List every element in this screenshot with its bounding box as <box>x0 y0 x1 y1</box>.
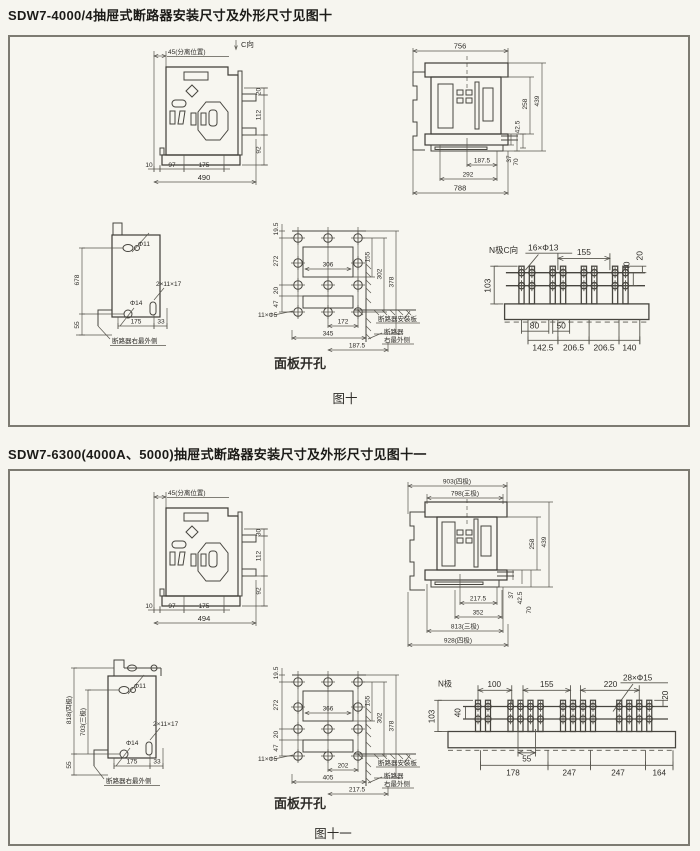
panel-cutout-caption: 面板开孔 <box>274 356 326 371</box>
dim-label: 345 <box>323 331 334 338</box>
dim-label: 175 <box>199 603 210 610</box>
dim-label: 202 <box>338 763 349 770</box>
figure11-caption: 图十一 <box>314 827 352 841</box>
nbar-label: N极 <box>438 679 452 689</box>
dim-label: 678 <box>74 274 81 285</box>
hole-phi11 <box>123 245 133 252</box>
figure10-drawing: C向 45(分离位置) 20 112 92 10 97 175 490 756 … <box>10 37 688 425</box>
dim-label: 70 <box>526 606 533 614</box>
dim-label: 92 <box>256 587 263 595</box>
dim-label: 112 <box>256 109 263 120</box>
dim-overall-width: 756 <box>454 42 467 51</box>
dim-separated-position: 45(分离位置) <box>168 488 206 497</box>
dim-label: 40 <box>454 708 463 718</box>
slot-11x17 <box>150 302 156 315</box>
figure11-drawing: 45(分离位置) 30 112 92 10 97 175 494 903(四极)… <box>10 471 688 844</box>
dim-label: 272 <box>273 255 280 266</box>
hole-label: Φ14 <box>130 300 143 307</box>
dim-label: 302 <box>377 268 384 279</box>
dim-label: 20 <box>273 287 280 295</box>
note-breaker: 断路器 <box>384 327 404 336</box>
holes-label: 11×Φ5 <box>258 756 278 763</box>
terminal-bar <box>242 535 256 542</box>
dim-label: 187.5 <box>474 158 491 165</box>
dim-label: 928(四极) <box>444 636 472 645</box>
dim-label: 10 <box>145 162 153 169</box>
fig10-front-view: 756 42.5 258 439 37 70 187.5 292 788 <box>413 42 546 196</box>
dim-label: 20 <box>661 690 670 700</box>
dim-label: 813(三极) <box>451 622 479 631</box>
dim-label: 378 <box>389 720 396 731</box>
terminal-bar <box>242 569 256 576</box>
dim-label: 206.5 <box>593 343 614 353</box>
dim-label: 97 <box>168 603 176 610</box>
nameplate <box>184 72 208 80</box>
fig10-mount-view: Φ11 678 55 Φ14 2×11×17 断路器右最外侧 175 33 <box>74 223 182 346</box>
dim-label: 788 <box>454 184 467 193</box>
dim-label: 42.5 <box>515 120 522 133</box>
dim-label: 40 <box>621 261 631 271</box>
slot-label: 2×11×17 <box>156 281 182 288</box>
hole-phi11 <box>119 687 129 694</box>
dim-label: 10 <box>145 603 153 610</box>
dim-label: 103 <box>482 278 492 292</box>
indicator-diamond <box>186 85 198 97</box>
dim-label: 55 <box>522 755 532 764</box>
slot-label: 2×11×17 <box>153 721 179 728</box>
hole-label: Φ11 <box>134 683 146 690</box>
dim-separated-position: 45(分离位置) <box>168 47 206 56</box>
fig11-front-view: 903(四极) 798(三极) 258 439 37 42.5 70 217.5… <box>408 477 553 648</box>
dim-label: 103 <box>427 709 436 723</box>
dim-label: 187.5 <box>349 343 366 350</box>
dim-label: 175 <box>131 319 142 326</box>
dim-label: 30 <box>256 529 263 537</box>
dim-label: 217.5 <box>349 787 366 794</box>
terminal-bar <box>242 94 256 101</box>
fig11-mount-view: Φ11 818(四极) 703(三极) 55 Φ14 2×11×17 断路器右最… <box>64 660 179 786</box>
dim-label: 175 <box>199 162 210 169</box>
top-flange <box>425 63 508 77</box>
fig10-panel-cutout: 306 19.5 272 20 47 155 302 378 断路器安装板 断路… <box>258 222 420 352</box>
fig10-side-view: C向 45(分离位置) 20 112 92 10 97 175 490 <box>145 39 268 185</box>
note-breaker-right-edge: 断路器右最外侧 <box>112 336 158 345</box>
dim-label: 55 <box>66 761 73 769</box>
dim-label: 19.5 <box>273 222 280 235</box>
dim-label: 47 <box>273 744 280 752</box>
busbar-support-plate <box>448 732 676 748</box>
dim-overall-depth: 490 <box>198 173 211 182</box>
dim-label: 112 <box>256 550 263 561</box>
figure11-frame: 45(分离位置) 30 112 92 10 97 175 494 903(四极)… <box>8 469 690 846</box>
dim-label: 172 <box>338 319 349 326</box>
dim-label: 175 <box>127 759 138 766</box>
dim-label: 142.5 <box>532 343 553 353</box>
dim-label: 247 <box>611 768 625 777</box>
dim-label: 818(四极) <box>64 696 73 724</box>
dim-label: 306 <box>323 262 334 269</box>
section2-title: SDW7-6300(4000A、5000)抽屉式断路器安装尺寸及外形尺寸见图十一 <box>8 444 668 463</box>
dim-label: 352 <box>473 610 484 617</box>
fig10-nbar-view: N极C向 16×Φ13 155 40 20 103 80 50 142.5 20… <box>482 243 649 353</box>
figure10-frame: C向 45(分离位置) 20 112 92 10 97 175 490 756 … <box>8 35 690 427</box>
note-mount-plate: 断路器安装板 <box>378 314 418 323</box>
hole-label: Φ11 <box>138 241 150 248</box>
dim-label: 178 <box>506 768 520 777</box>
drawer-slide <box>431 580 499 587</box>
dim-label: 100 <box>487 680 501 689</box>
terminal-bar <box>242 128 256 135</box>
dim-label: 272 <box>273 699 280 710</box>
dim-label: 258 <box>522 98 529 109</box>
side-rail <box>413 72 425 150</box>
panel-cutout-caption: 面板开孔 <box>274 796 326 811</box>
dim-label: 20 <box>634 251 644 261</box>
dim-label: 258 <box>529 538 536 549</box>
side-rail <box>410 512 425 590</box>
dim-label: 47 <box>273 300 280 308</box>
nbar-label: N极C向 <box>489 245 518 255</box>
dim-label: 80 <box>530 321 540 331</box>
dim-overall-width-3p: 798(三极) <box>451 489 479 498</box>
note-breaker: 断路器 <box>384 771 404 780</box>
slot-11x17 <box>146 742 152 755</box>
dim-label: 140 <box>622 343 636 353</box>
dim-label: 220 <box>604 680 618 689</box>
hole-label: Φ14 <box>126 740 139 747</box>
dim-label: 33 <box>157 319 165 326</box>
dim-label: 217.5 <box>470 596 487 603</box>
handle-octagon <box>198 102 228 140</box>
dim-label: 405 <box>323 775 334 782</box>
dim-label: 97 <box>168 162 176 169</box>
dim-overall-depth: 494 <box>198 614 211 623</box>
fig11-panel-cutout: 366 19.5 272 20 47 155 302 378 断路器安装板 断路… <box>258 666 420 796</box>
dim-label: 37 <box>508 591 515 599</box>
handle-octagon <box>198 543 228 581</box>
fig11-side-view: 45(分离位置) 30 112 92 10 97 175 494 <box>145 488 268 626</box>
dim-label: 378 <box>389 276 396 287</box>
dim-label: 42.5 <box>517 591 524 604</box>
dim-label: 439 <box>534 95 541 106</box>
dim-label: 33 <box>153 759 161 766</box>
dim-label: 155 <box>577 247 591 257</box>
figure10-caption: 图十 <box>332 392 357 406</box>
dim-label: 703(三极) <box>78 708 87 736</box>
cabinet-body <box>431 77 501 134</box>
view-direction-label: C向 <box>241 39 254 49</box>
section1-title: SDW7-4000/4抽屉式断路器安装尺寸及外形尺寸见图十 <box>8 5 668 24</box>
holes-label: 11×Φ5 <box>258 312 278 319</box>
fig11-nbar-view: N极 28×Φ15 100 155 220 20 103 40 55 178 2… <box>427 673 675 777</box>
indicator-diamond <box>186 526 198 538</box>
holes-label: 28×Φ15 <box>623 673 653 682</box>
hole-phi14 <box>120 750 128 758</box>
dim-label: 247 <box>562 768 576 777</box>
nameplate <box>184 513 208 521</box>
busbar-support-plate <box>505 304 649 320</box>
dim-label: 92 <box>256 146 263 154</box>
dim-overall-width-4p: 903(四极) <box>443 477 471 486</box>
note-mount-plate: 断路器安装板 <box>378 758 418 767</box>
note-breaker-right-edge: 断路器右最外侧 <box>106 776 152 785</box>
holes-label: 16×Φ13 <box>528 243 559 253</box>
dim-label: 292 <box>463 172 474 179</box>
dim-label: 302 <box>377 712 384 723</box>
dim-label: 20 <box>256 88 263 96</box>
dim-label: 20 <box>273 731 280 739</box>
dim-label: 155 <box>540 680 554 689</box>
base-flange <box>425 134 508 145</box>
base-flange <box>425 570 507 580</box>
dim-label: 70 <box>513 158 520 166</box>
dim-label: 366 <box>323 706 334 713</box>
dim-label: 439 <box>541 536 548 547</box>
dim-label: 55 <box>74 321 81 329</box>
top-flange <box>425 502 507 517</box>
dim-label: 206.5 <box>563 343 584 353</box>
dim-label: 37 <box>506 155 513 163</box>
dim-label: 19.5 <box>273 666 280 679</box>
dim-label: 164 <box>652 768 666 777</box>
